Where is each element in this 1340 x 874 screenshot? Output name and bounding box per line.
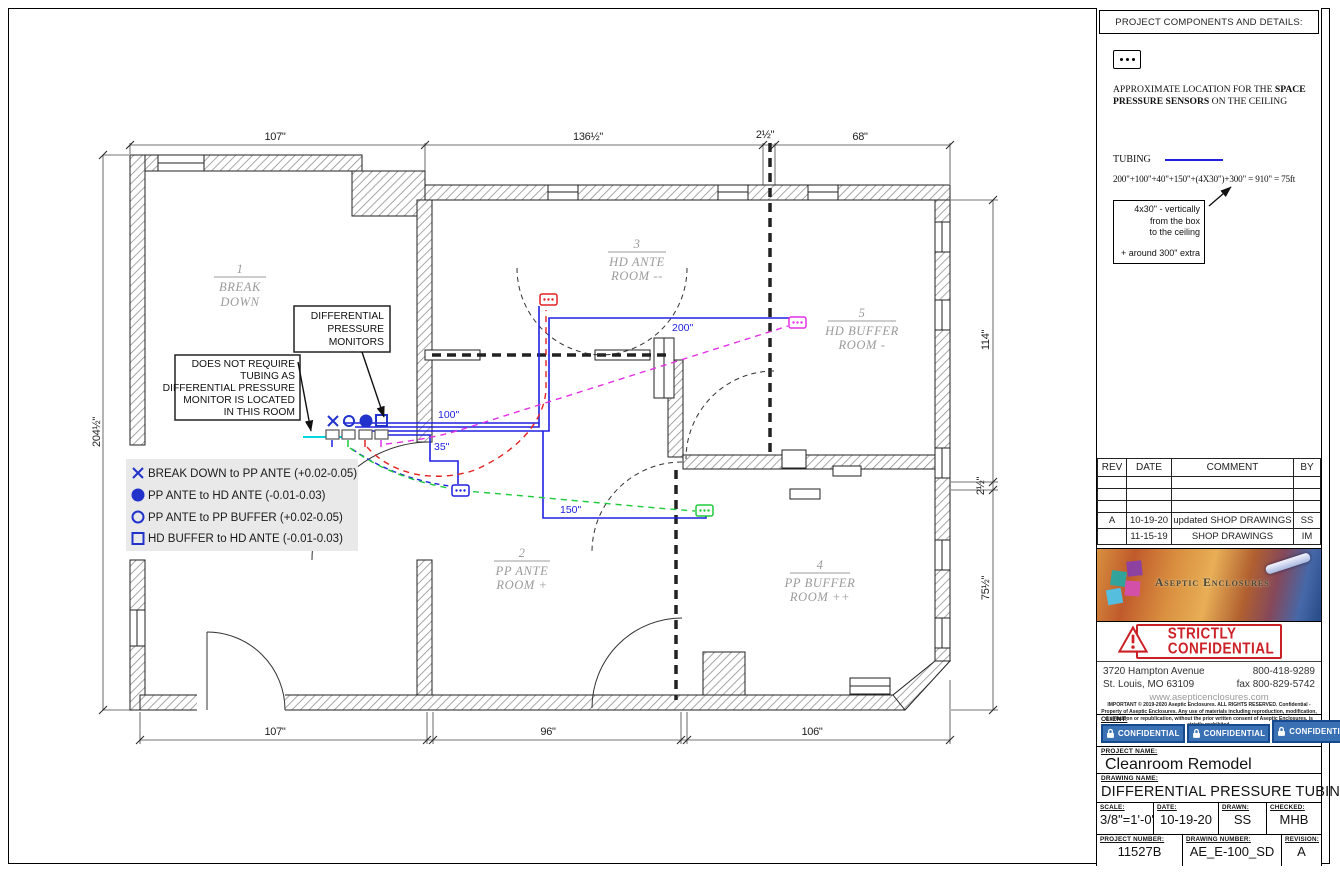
callout-monitors-line3: MONITORS <box>329 337 384 348</box>
address-city: St. Louis, MO 63109 <box>1103 679 1194 692</box>
vertical-tubing-callout: 4x30" - vertically from the box to the c… <box>1113 200 1205 264</box>
svg-text:4: 4 <box>817 558 824 572</box>
lock-icon <box>1106 728 1115 739</box>
logo-cube <box>1124 580 1140 596</box>
fixtures <box>425 338 861 499</box>
space-pressure-sensor-icon <box>1113 50 1141 69</box>
confidential-badge-text: CONFIDENTIAL <box>1118 729 1180 738</box>
company-address: 3720 Hampton Avenue 800-418-9289 St. Lou… <box>1097 664 1321 705</box>
legend-item-3: PP ANTE to PP BUFFER (+0.02-0.05) <box>148 512 343 524</box>
scale-cell: SCALE: 3/8"=1'-0" <box>1097 803 1154 834</box>
rev-cell: IM <box>1294 529 1321 545</box>
rev-row-empty <box>1098 477 1321 489</box>
drawing-number-value: AE_E-100_SD <box>1186 844 1278 859</box>
callout-extra: + around 300" extra <box>1118 248 1200 260</box>
drawing-number-label: DRAWING NUMBER: <box>1186 836 1278 843</box>
drawn-value: SS <box>1222 812 1263 827</box>
panel-header: PROJECT COMPONENTS AND DETAILS: <box>1099 10 1319 34</box>
tubing-formula: 200"+100"+40"+150"+(4X30")+300" = 910" =… <box>1113 174 1317 184</box>
callout-monitors: DIFFERENTIAL PRESSURE MONITORS <box>294 306 390 417</box>
dim-top-1: 107" <box>264 131 285 143</box>
rev-header-rev: REV <box>1098 459 1127 477</box>
callout-line2: from the box <box>1118 216 1200 228</box>
tubing-label-150: 150" <box>560 504 582 516</box>
tubing-green-dashed <box>350 448 695 511</box>
rev-cell: SHOP DRAWINGS <box>1172 529 1294 545</box>
room-label-1: 1 BREAK DOWN <box>214 262 266 309</box>
scale-value: 3/8"=1'-0" <box>1100 812 1150 827</box>
lock-icon <box>1192 728 1201 739</box>
svg-text:ROOM -: ROOM - <box>838 338 886 352</box>
date-label: DATE: <box>1157 804 1215 811</box>
rev-cell: 11-15-19 <box>1127 529 1172 545</box>
meta-row-2: PROJECT NUMBER: 11527B DRAWING NUMBER: A… <box>1097 834 1321 866</box>
legend-item-1: BREAK DOWN to PP ANTE (+0.02-0.05) <box>148 468 357 480</box>
sensor-red-icon <box>540 294 557 305</box>
callout-no-tubing-line2: TUBING AS <box>240 371 295 382</box>
dim-bottom-1: 107" <box>264 726 285 738</box>
revision-table: REV DATE COMMENT BY A 10-19-20 updated S… <box>1097 458 1321 545</box>
svg-text:DOWN: DOWN <box>219 295 259 309</box>
sensor-note: APPROXIMATE LOCATION FOR THE SPACE PRESS… <box>1113 84 1309 108</box>
callout-monitors-line2: PRESSURE <box>327 324 384 335</box>
warning-triangle-icon <box>1116 623 1150 655</box>
logo-cube <box>1106 588 1123 605</box>
project-name-value: Cleanroom Remodel <box>1105 756 1317 774</box>
drawn-label: DRAWN: <box>1222 804 1263 811</box>
svg-text:2: 2 <box>519 546 526 560</box>
dim-right-3: 75½" <box>980 576 992 601</box>
dim-top-2: 136½" <box>573 131 603 143</box>
sensor-green-icon <box>696 505 713 516</box>
logo-cube <box>1126 560 1142 576</box>
room-label-5: 5 HD BUFFER ROOM - <box>824 306 899 352</box>
room-label-4: 4 PP BUFFER ROOM ++ <box>784 558 856 604</box>
rev-row: A 10-19-20 updated SHOP DRAWINGS SS <box>1098 513 1321 529</box>
svg-text:PP ANTE: PP ANTE <box>495 564 549 578</box>
tubing-label: TUBING <box>1113 154 1151 165</box>
checked-value: MHB <box>1270 812 1318 827</box>
rev-header-date: DATE <box>1127 459 1172 477</box>
rev-cell: SS <box>1294 513 1321 529</box>
room-label-3: 3 HD ANTE ROOM -- <box>608 237 666 283</box>
floor-plan: 107" 136½" 2½" 68" 204½" 114" 2½" 75½" 1… <box>0 0 1096 874</box>
legend-filled-circle-icon <box>133 490 144 501</box>
address-street: 3720 Hampton Avenue <box>1103 666 1205 679</box>
rev-row-empty <box>1098 501 1321 513</box>
filled-circle-icon <box>361 416 372 427</box>
door-opening <box>197 693 285 712</box>
callout-no-tubing-line5: IN THIS ROOM <box>224 407 295 418</box>
drawing-name-section: DRAWING NAME: DIFFERENTIAL PRESSURE TUBI… <box>1097 773 1321 802</box>
svg-text:1: 1 <box>237 262 244 276</box>
sensor-magenta-icon <box>789 317 806 328</box>
syringe-image <box>1265 552 1312 575</box>
project-number-value: 11527B <box>1100 844 1179 859</box>
revision-value: A <box>1285 844 1318 859</box>
checked-label: CHECKED: <box>1270 804 1318 811</box>
strictly-confidential-stamp: STRICTLY CONFIDENTIAL <box>1097 622 1321 662</box>
date-cell: DATE: 10-19-20 <box>1154 803 1219 834</box>
sensor-note-pre: APPROXIMATE LOCATION FOR THE <box>1113 84 1275 95</box>
callout-no-tubing-line4: MONITOR IS LOCATED <box>183 395 295 406</box>
legend: BREAK DOWN to PP ANTE (+0.02-0.05) PP AN… <box>126 459 358 551</box>
windows <box>130 155 950 694</box>
dim-top-4: 68" <box>852 131 868 143</box>
rev-cell: updated SHOP DRAWINGS <box>1172 513 1294 529</box>
svg-text:ROOM +: ROOM + <box>495 578 547 592</box>
callout-arrow <box>1205 184 1245 208</box>
legend-item-4: HD BUFFER to HD ANTE (-0.01-0.03) <box>148 533 343 545</box>
walls <box>130 155 950 710</box>
tubing-legend: TUBING <box>1113 154 1223 165</box>
rev-cell: 10-19-20 <box>1127 513 1172 529</box>
client-section: CLIENT: CONFIDENTIAL CONFIDENTIAL CONFID… <box>1097 714 1321 746</box>
tubing-label-35: 35" <box>434 441 450 453</box>
drawing-sheet: 107" 136½" 2½" 68" 204½" 114" 2½" 75½" 1… <box>0 0 1340 874</box>
rev-cell <box>1098 529 1127 545</box>
rev-row: 11-15-19 SHOP DRAWINGS IM <box>1098 529 1321 545</box>
lock-icon <box>1277 726 1286 737</box>
address-phone: 800-418-9289 <box>1253 666 1315 679</box>
dim-right-2: 2½" <box>975 476 987 495</box>
revision-label: REVISION: <box>1285 836 1318 843</box>
tubing-blue-dashed <box>352 449 453 487</box>
title-panel: PROJECT COMPONENTS AND DETAILS: APPROXIM… <box>1096 8 1322 866</box>
project-name-section: PROJECT NAME: Cleanroom Remodel <box>1097 746 1321 773</box>
project-number-label: PROJECT NUMBER: <box>1100 836 1179 843</box>
meta-row-1: SCALE: 3/8"=1'-0" DATE: 10-19-20 DRAWN: … <box>1097 802 1321 834</box>
rev-cell: A <box>1098 513 1127 529</box>
legend-item-2: PP ANTE to HD ANTE (-0.01-0.03) <box>148 490 326 502</box>
confidential-badge: CONFIDENTIAL <box>1187 724 1271 743</box>
dimension-ticks <box>99 141 997 744</box>
svg-text:HD BUFFER: HD BUFFER <box>824 324 899 338</box>
callout-monitors-line1: DIFFERENTIAL <box>311 311 385 322</box>
stamp-line2: CONFIDENTIAL <box>1168 640 1275 656</box>
date-value: 10-19-20 <box>1157 812 1215 827</box>
callout-line1: 4x30" - vertically <box>1118 204 1200 216</box>
tubing-label-200: 200" <box>672 322 694 334</box>
callout-no-tubing-line3: DIFFERENTIAL PRESSURE <box>163 383 295 394</box>
room-label-2: 2 PP ANTE ROOM + <box>494 546 550 592</box>
project-name-label: PROJECT NAME: <box>1101 748 1317 755</box>
svg-text:BREAK: BREAK <box>219 280 261 294</box>
drawing-name-value: DIFFERENTIAL PRESSURE TUBING <box>1101 784 1317 800</box>
revision-cell: REVISION: A <box>1282 835 1321 866</box>
pressure-sensors <box>452 294 806 516</box>
rev-row-empty <box>1098 489 1321 501</box>
svg-text:HD ANTE: HD ANTE <box>608 255 665 269</box>
logo-brand-text: Aseptic Enclosures <box>1155 577 1270 589</box>
dim-right-1: 114" <box>980 329 992 350</box>
sensor-blue-icon <box>452 485 469 496</box>
rev-header-by: BY <box>1294 459 1321 477</box>
dim-bottom-3: 106" <box>801 726 822 738</box>
rev-header-comment: COMMENT <box>1172 459 1294 477</box>
drawing-number-cell: DRAWING NUMBER: AE_E-100_SD <box>1183 835 1282 866</box>
svg-text:ROOM --: ROOM -- <box>610 269 663 283</box>
svg-text:5: 5 <box>859 306 866 320</box>
tubing-line-sample <box>1165 159 1223 161</box>
tubing-label-100: 100" <box>438 409 460 421</box>
scale-label: SCALE: <box>1100 804 1150 811</box>
checked-cell: CHECKED: MHB <box>1267 803 1321 834</box>
svg-text:ROOM ++: ROOM ++ <box>789 590 850 604</box>
dimension-lines <box>103 143 998 744</box>
address-fax: fax 800-829-5742 <box>1237 679 1315 692</box>
project-number-cell: PROJECT NUMBER: 11527B <box>1097 835 1183 866</box>
confidential-badge: CONFIDENTIAL <box>1101 724 1185 743</box>
drawing-name-label: DRAWING NAME: <box>1101 775 1317 782</box>
tubing-blue <box>343 306 793 518</box>
tubing-red-dashed <box>367 310 546 476</box>
svg-text:3: 3 <box>633 237 641 251</box>
dim-top-3: 2½" <box>756 129 775 141</box>
svg-text:PP BUFFER: PP BUFFER <box>784 576 856 590</box>
confidential-badge-text: CONFIDENTIAL <box>1289 727 1340 736</box>
callout-no-tubing: DOES NOT REQUIRE TUBING AS DIFFERENTIAL … <box>163 355 311 431</box>
callout-no-tubing-line1: DOES NOT REQUIRE <box>192 359 295 370</box>
open-square-icon <box>376 415 387 426</box>
company-logo: Aseptic Enclosures <box>1097 548 1321 622</box>
drawn-cell: DRAWN: SS <box>1219 803 1267 834</box>
confidential-badge-text: CONFIDENTIAL <box>1204 729 1266 738</box>
dim-bottom-2: 96" <box>540 726 556 738</box>
dim-left: 204½" <box>91 417 103 447</box>
sensor-note-post: ON THE CEILING <box>1209 96 1287 107</box>
confidential-badge: CONFIDENTIAL <box>1272 720 1340 743</box>
open-circle-icon <box>344 416 354 426</box>
callout-line3: to the ceiling <box>1118 227 1200 239</box>
dashed-walls <box>432 143 770 700</box>
